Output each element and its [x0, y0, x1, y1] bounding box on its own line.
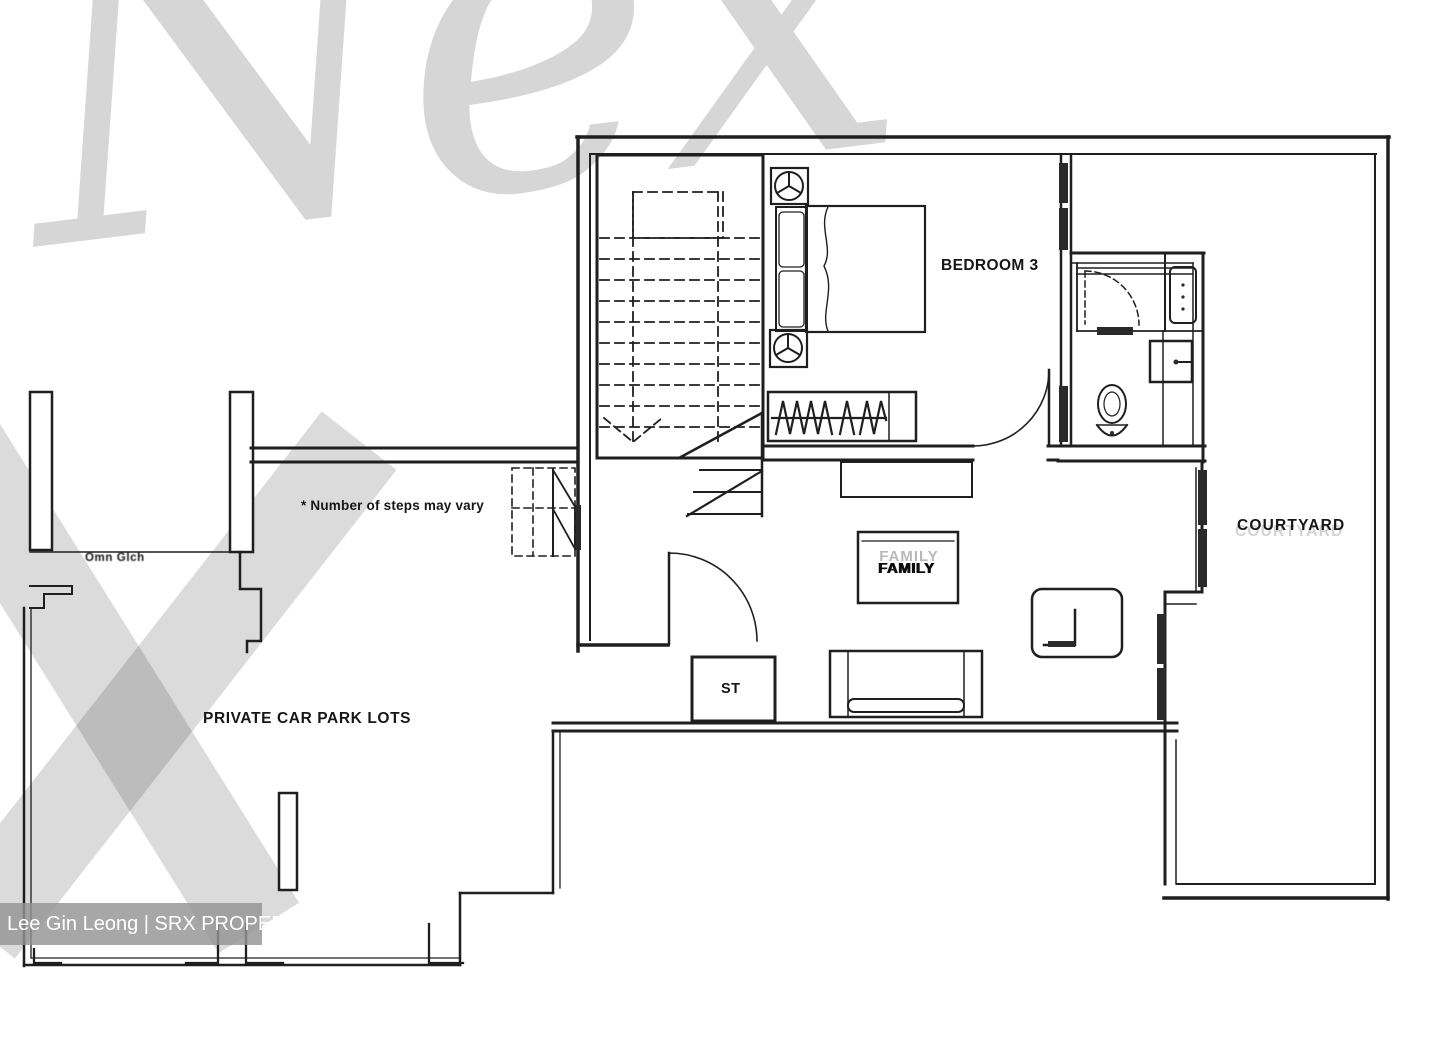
- double-bed: [770, 168, 925, 367]
- parking-column: [279, 793, 297, 890]
- storage-label: ST: [721, 681, 741, 697]
- entry-door-swing: [578, 553, 757, 645]
- wall-pier: [230, 392, 253, 552]
- carpark-label: PRIVATE CAR PARK LOTS: [203, 710, 411, 728]
- tv-console: [1032, 589, 1122, 657]
- wall-pier: [30, 392, 52, 550]
- bench-sofa: [830, 651, 982, 717]
- credit-watermark: Lee Gin Leong | SRX PROPERTY: [0, 903, 262, 945]
- courtyard-walls: [1165, 462, 1202, 884]
- wardrobe: [768, 392, 916, 441]
- floorplan-drawing: [0, 0, 1440, 1044]
- courtyard-label: COURTYARD: [1237, 517, 1345, 535]
- wall-annotation: Omn Glch: [85, 552, 145, 564]
- steps-note: * Number of steps may vary: [301, 498, 484, 513]
- toilet: [1097, 385, 1127, 436]
- bedroom3-label: BEDROOM 3: [941, 257, 1038, 275]
- family-label: FAMILY: [861, 560, 951, 577]
- entry-steps: [512, 468, 575, 556]
- shower: [1077, 263, 1203, 335]
- floorplan-canvas: Nex: [0, 0, 1440, 1044]
- wash-basin: [1150, 331, 1192, 445]
- bedroom-door-swing: [973, 370, 1049, 446]
- shower-door-swing: [1085, 271, 1139, 325]
- family-furniture: [830, 462, 1122, 717]
- carpark-walls: [24, 392, 578, 966]
- staircase: [597, 155, 763, 516]
- sideboard: [841, 462, 972, 497]
- vanity-counter: [1165, 253, 1196, 331]
